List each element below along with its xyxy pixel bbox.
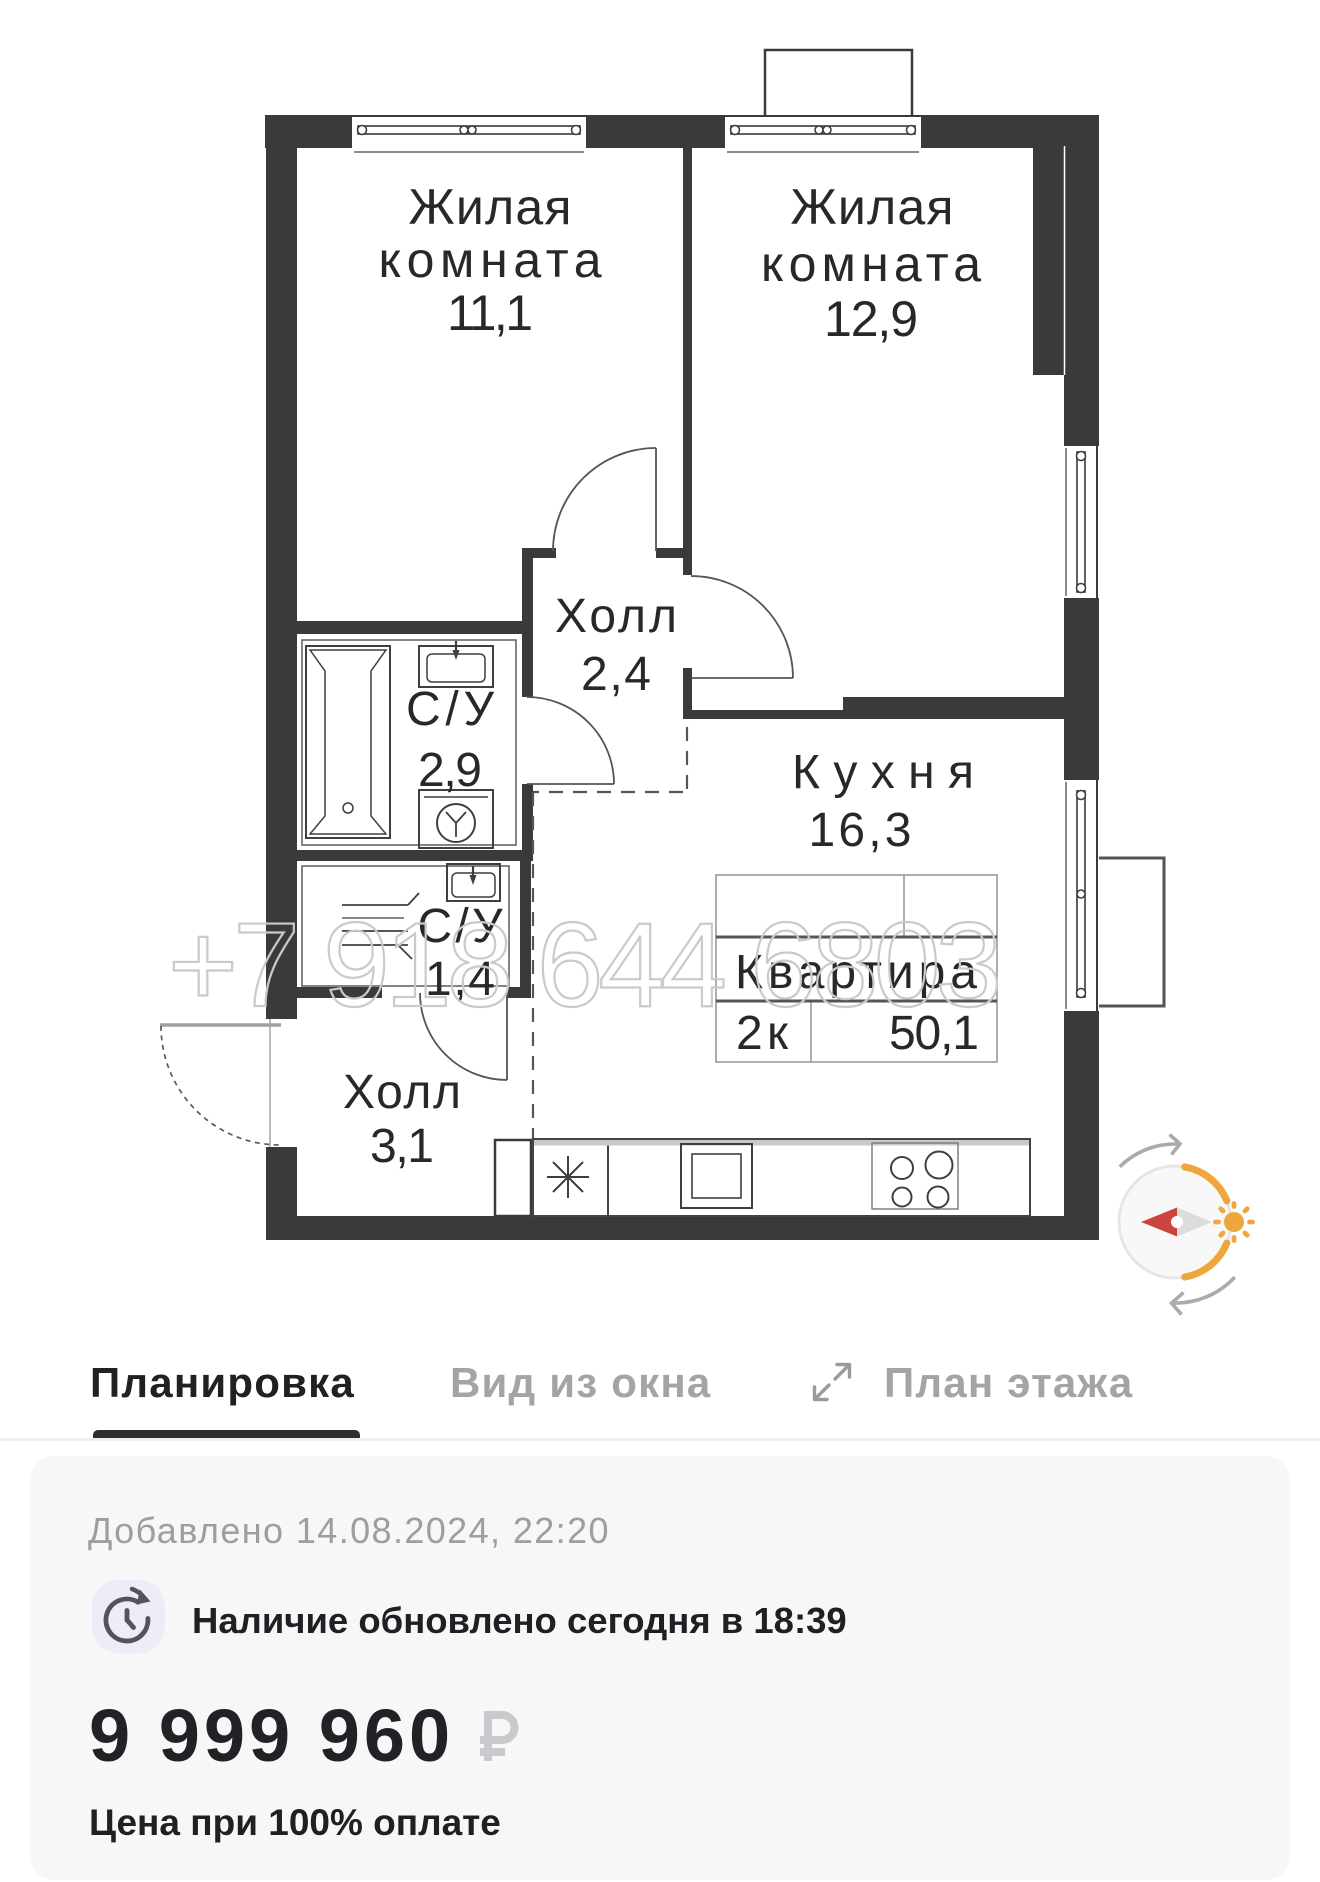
svg-text:Жилая: Жилая: [409, 179, 572, 235]
svg-text:Кухня: Кухня: [792, 746, 974, 799]
svg-text:2,9: 2,9: [418, 744, 482, 797]
svg-text:11,1: 11,1: [447, 285, 533, 341]
svg-text:16,3: 16,3: [809, 804, 912, 857]
svg-text:Жилая: Жилая: [791, 179, 954, 235]
svg-text:12,9: 12,9: [824, 291, 918, 347]
svg-text:Холл: Холл: [555, 590, 677, 643]
svg-text:+7 918 644 6803: +7 918 644 6803: [168, 898, 997, 1032]
svg-text:комната: комната: [761, 236, 981, 292]
svg-text:Холл: Холл: [343, 1066, 461, 1119]
svg-text:3,1: 3,1: [370, 1120, 434, 1173]
svg-text:комната: комната: [379, 232, 602, 288]
svg-text:2,4: 2,4: [581, 648, 651, 701]
svg-text:С/У: С/У: [406, 683, 495, 736]
